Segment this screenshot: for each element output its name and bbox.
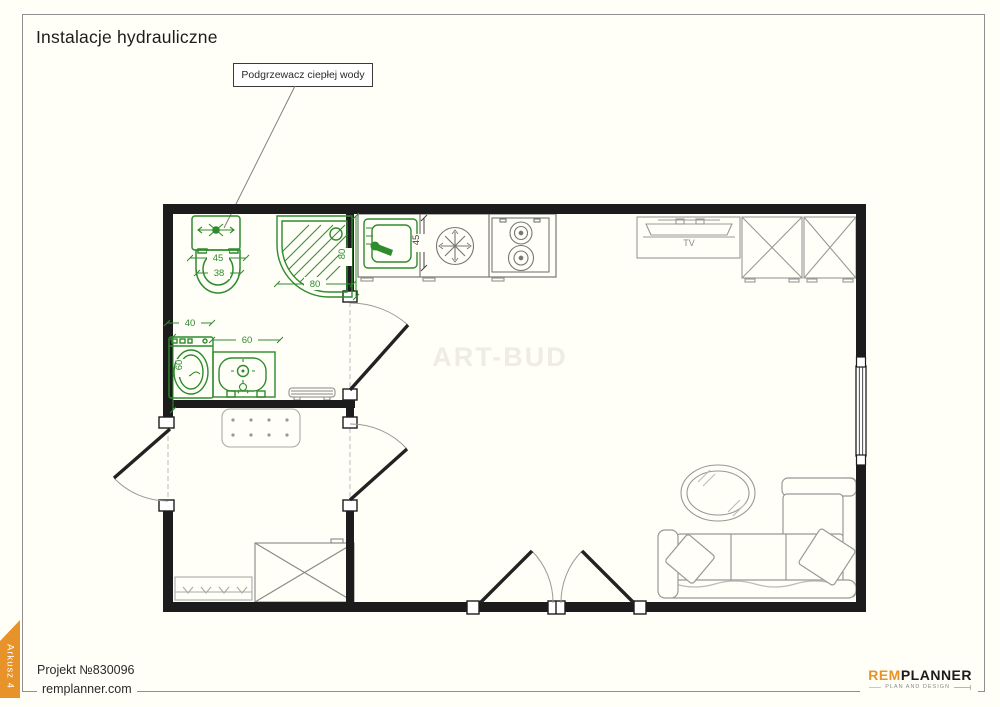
logo-dash-right — [954, 687, 970, 688]
project-number: Projekt №830096 — [37, 663, 135, 677]
svg-text:45: 45 — [411, 235, 422, 246]
oval-table — [681, 465, 755, 521]
svg-text:60: 60 — [174, 360, 185, 371]
towel-radiator — [289, 388, 335, 400]
bathroom-dimensions: 45 38 80 80 40 60 — [164, 213, 359, 413]
website-link[interactable]: remplanner.com — [37, 682, 137, 696]
double-door-right — [561, 551, 634, 603]
wardrobe-hall — [255, 539, 354, 602]
tv-label: TV — [683, 238, 695, 248]
vanity-sink — [213, 352, 275, 397]
shoe-rack — [175, 577, 252, 600]
remplanner-logo: REMPLANNER PLAN AND DESIGN — [860, 668, 978, 692]
tv-unit: TV — [637, 217, 740, 258]
logo-tick — [970, 685, 971, 690]
vent-fan-symbol — [437, 228, 474, 265]
sheet-tab-label: Arkusz 4 — [5, 644, 16, 689]
logo-tagline: PLAN AND DESIGN — [885, 684, 950, 690]
svg-text:80: 80 — [337, 249, 348, 260]
sheet: Instalacje hydrauliczne Podgrzewacz ciep… — [0, 0, 1000, 707]
logo-dash-left — [869, 687, 881, 688]
bathroom-door — [350, 303, 408, 390]
wardrobe-right-1 — [742, 217, 802, 282]
double-door-left — [480, 551, 553, 603]
bench — [222, 409, 300, 447]
svg-text:45: 45 — [213, 253, 224, 264]
water-heater-symbol — [198, 224, 234, 236]
stove — [492, 218, 549, 272]
kitchen-sink — [364, 219, 417, 268]
svg-text:60: 60 — [242, 335, 253, 346]
logo-rem: REM — [868, 667, 901, 683]
svg-text:40: 40 — [185, 318, 196, 329]
logo-planner: PLANNER — [901, 667, 972, 683]
svg-text:38: 38 — [214, 268, 225, 279]
window — [856, 357, 866, 465]
watermark-text: ART-BUD — [432, 342, 568, 372]
hall-door — [350, 424, 407, 500]
svg-text:80: 80 — [310, 279, 321, 290]
entrance-door — [114, 429, 170, 501]
counter-dimension: 45 — [411, 215, 427, 271]
floor-plan: ART-BUD — [0, 0, 1000, 707]
wardrobe-right-2 — [804, 217, 856, 282]
